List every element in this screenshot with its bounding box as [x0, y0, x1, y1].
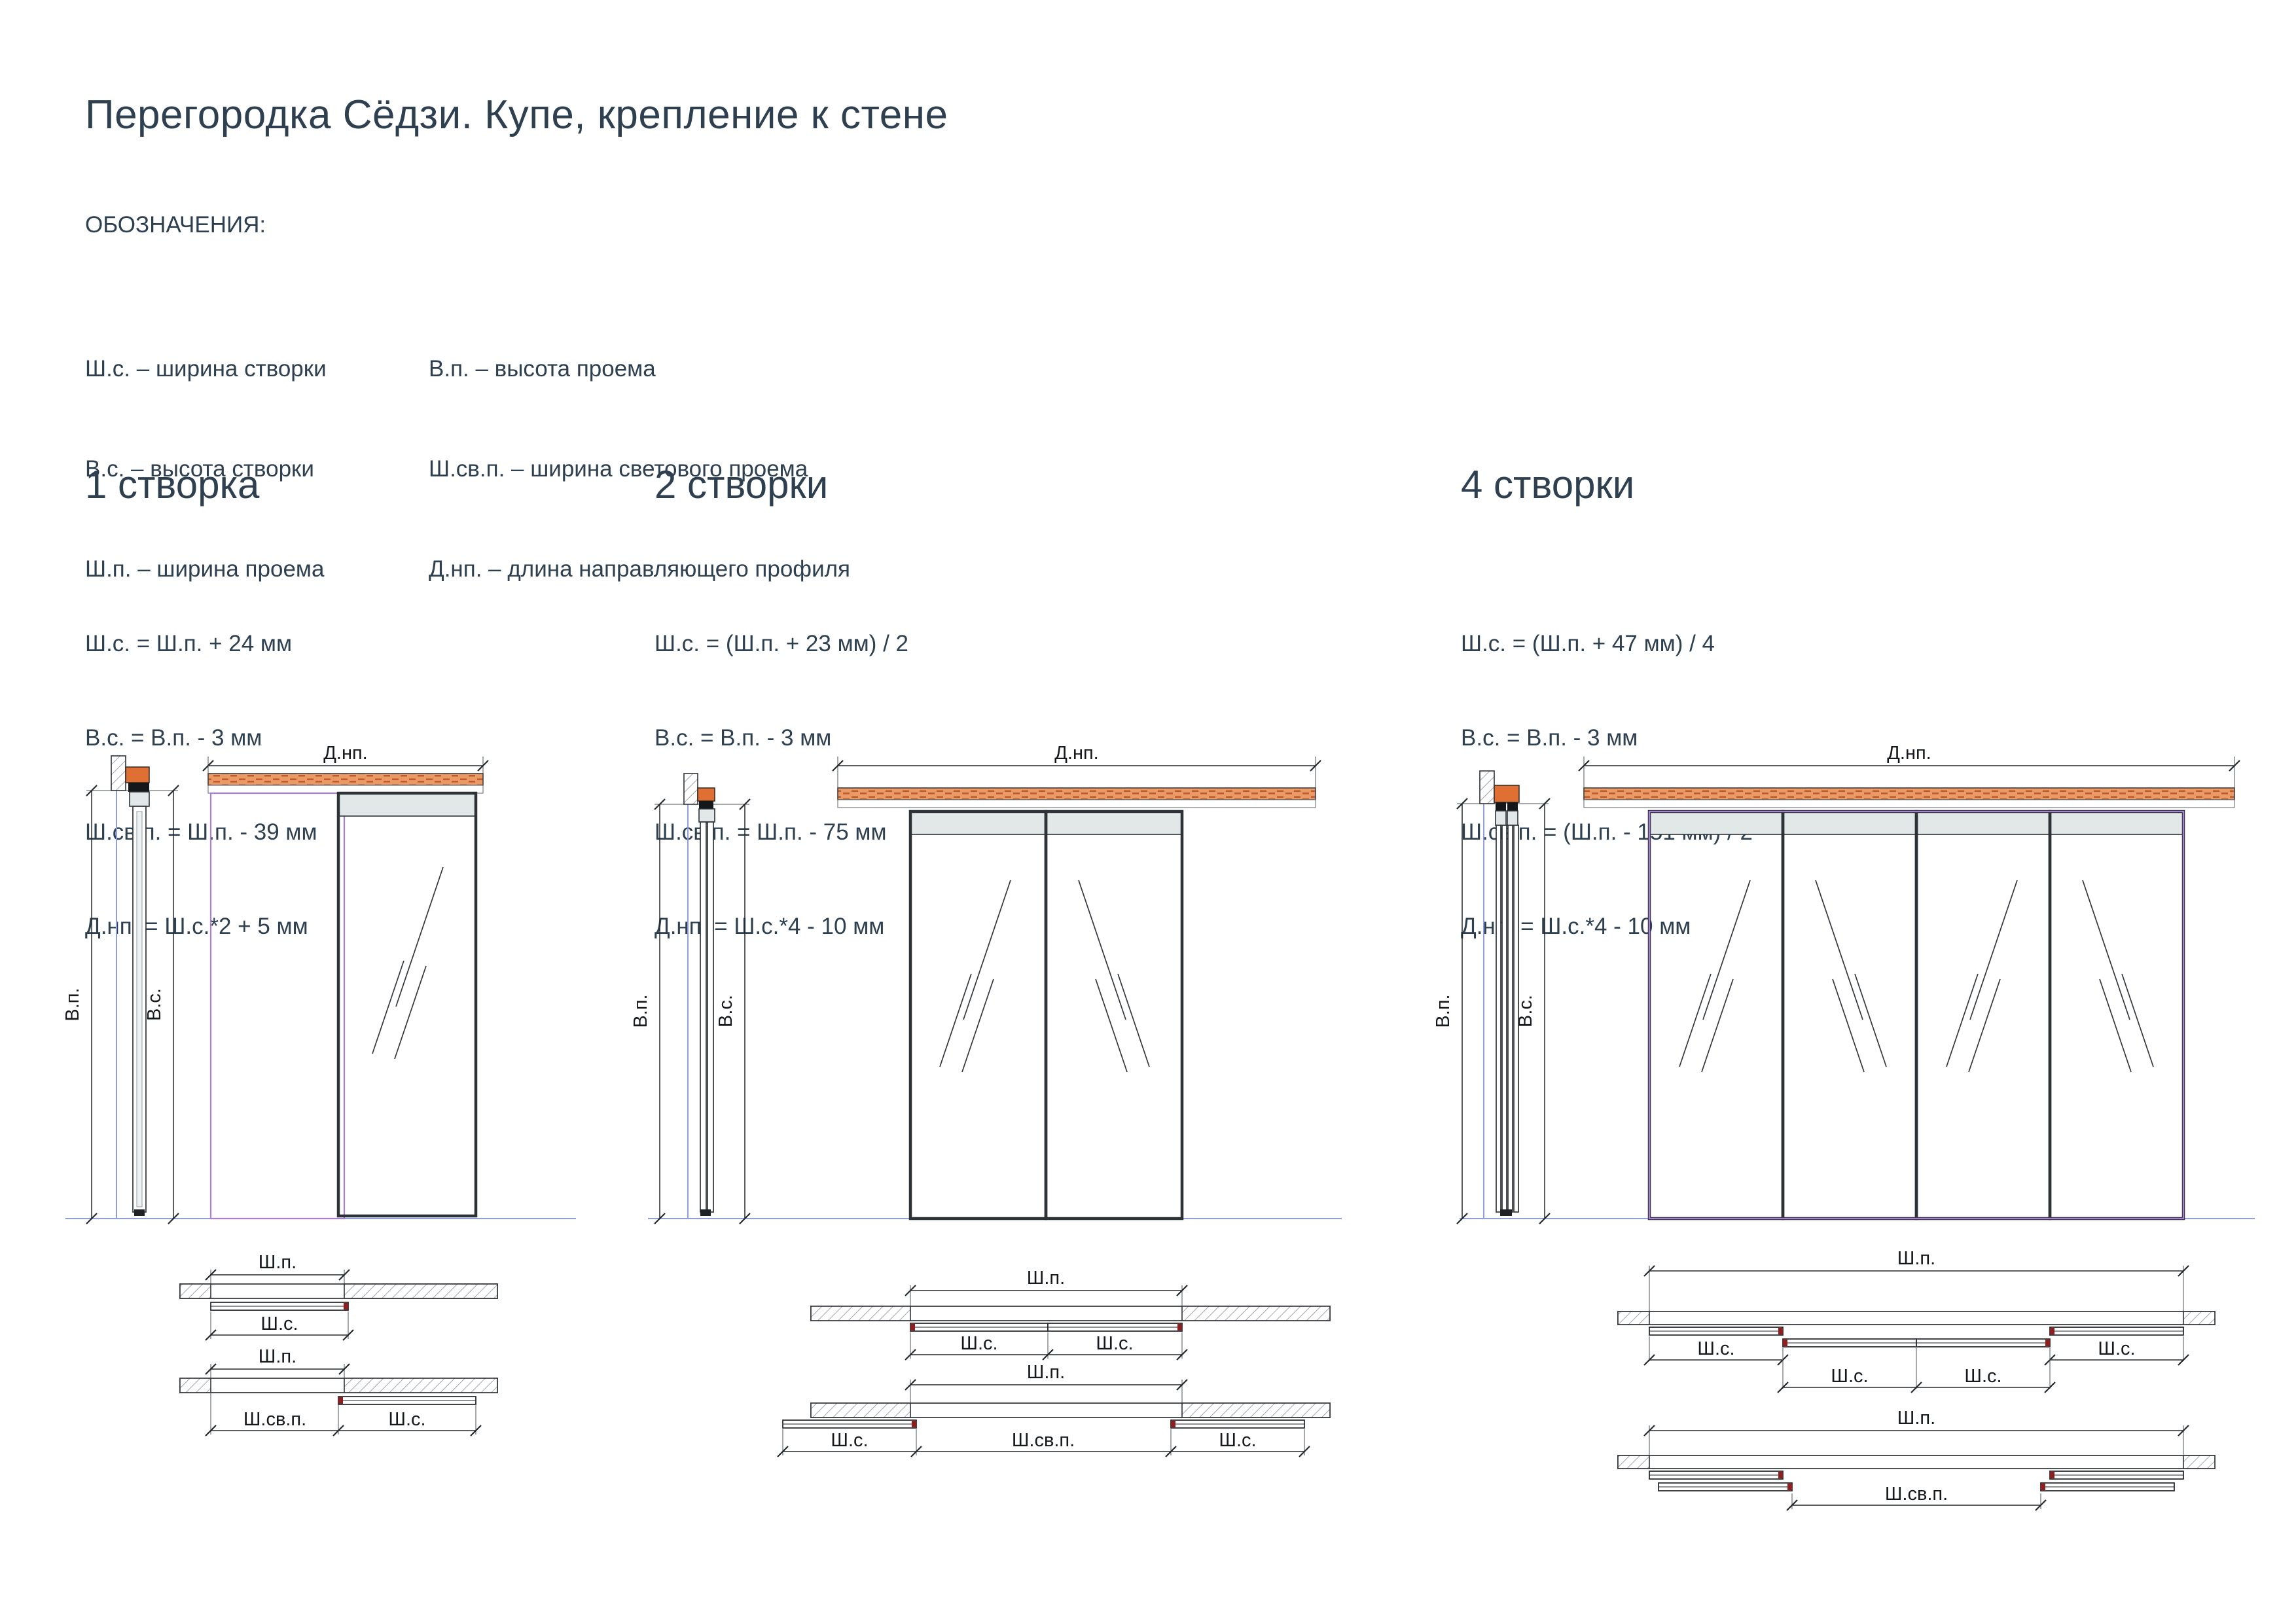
section-1-heading: 1 створка: [85, 462, 259, 507]
guide-profile: [838, 788, 1316, 800]
leaf-section: [700, 822, 706, 1212]
label-shs: Ш.с.: [1831, 1366, 1868, 1387]
dim-vs: В.с.: [715, 799, 750, 1224]
section-4-heading: 4 створки: [1461, 462, 1634, 507]
label-shs: Ш.с.: [2098, 1338, 2135, 1359]
door-leaf: [338, 793, 476, 1216]
page: { "page": { "title": "Перегородка Сёдзи.…: [0, 0, 2296, 1623]
handle-mark: [1787, 1484, 1792, 1490]
glass-mark: [2083, 880, 2153, 1072]
guide-profile: [1584, 788, 2234, 800]
label-shp: Ш.п.: [259, 1252, 296, 1273]
section-1-drawing: В.п. В.с. Д.нп. Ш.п.: [62, 743, 576, 1436]
top-view-closed: Ш.п. Ш.с. Ш.с.: [811, 1268, 1330, 1360]
top-view-closed: Ш.п. Ш.с.: [180, 1252, 497, 1340]
track-profile: [128, 783, 149, 792]
page-title: Перегородка Сёдзи. Купе, крепление к сте…: [85, 92, 948, 138]
roller-cap: [699, 809, 715, 822]
top-view-open: Ш.п. Ш.св.п.: [1618, 1408, 2215, 1510]
label-shp: Ш.п.: [1897, 1248, 1935, 1269]
label-shs: Ш.с.: [260, 1313, 298, 1334]
label-shsvp: Ш.св.п.: [243, 1409, 306, 1430]
legend-item: Ш.с. – ширина створки: [85, 352, 327, 385]
door-leaf: [1916, 811, 2050, 1219]
handle-mark: [1783, 1340, 1787, 1346]
label-shs: Ш.с.: [960, 1333, 997, 1354]
label-dnp: Д.нп.: [1887, 743, 1931, 764]
label-shp: Ш.п.: [1027, 1268, 1065, 1289]
door-leaf: [2050, 811, 2183, 1219]
dim-vp: В.п.: [1433, 798, 1467, 1224]
label-vp: В.п.: [62, 988, 83, 1021]
handle-mark: [1778, 1472, 1783, 1478]
front-view: Д.нп.: [203, 743, 488, 1219]
handle-mark: [1171, 1421, 1175, 1427]
glass-mark: [940, 880, 1011, 1072]
glass-mark: [1816, 880, 1886, 1072]
door-leaf: [1046, 811, 1182, 1219]
door-leaf: [1649, 811, 1783, 1219]
handle-mark: [338, 1397, 343, 1404]
track-profile: [1507, 802, 1518, 811]
label-dnp: Д.нп.: [323, 743, 367, 764]
front-view: Д.нп.: [1579, 743, 2240, 1219]
technical-drawings: В.п. В.с. Д.нп. Ш.п.: [0, 707, 2296, 1623]
dim-dnp: Д.нп.: [833, 743, 1321, 789]
label-shsvp: Ш.св.п.: [1012, 1430, 1075, 1451]
roller-cap: [130, 792, 149, 806]
top-view-open: Ш.п. Ш.св.п. Ш.с.: [180, 1346, 497, 1436]
leaf-section: [708, 822, 713, 1212]
door-leaf: [910, 811, 1046, 1219]
leaf-section: [1514, 825, 1518, 1212]
side-view: В.п. В.с.: [62, 756, 179, 1224]
label-shs: Ш.с.: [831, 1430, 868, 1451]
legend-item: В.п. – высота проема: [429, 352, 850, 385]
dim-dnp: Д.нп.: [203, 743, 488, 775]
label-vp: В.п.: [630, 994, 651, 1027]
leaf-section: [1502, 825, 1507, 1212]
track-profile: [699, 801, 713, 809]
wall-section: [111, 756, 126, 791]
label-shp: Ш.п.: [1027, 1362, 1065, 1383]
label-shs: Ш.с.: [1964, 1366, 2001, 1387]
label-shs: Ш.с.: [1219, 1430, 1256, 1451]
handle-mark: [910, 1324, 915, 1330]
label-shp: Ш.п.: [1897, 1408, 1935, 1429]
formula-line: Ш.с. = (Ш.п. + 47 мм) / 4: [1461, 628, 1753, 660]
track-profile: [1496, 802, 1506, 811]
door-leaf: [1783, 811, 1916, 1219]
wall-bracket: [698, 788, 715, 801]
glass-mark: [1946, 880, 2017, 1072]
section-2-drawing: В.п. В.с. Д.нп. Ш.п.: [630, 743, 1342, 1457]
front-view: Д.нп.: [833, 743, 1321, 1219]
dim-vp: В.п.: [62, 785, 97, 1224]
dim-vs: В.с.: [144, 785, 179, 1224]
formula-line: Ш.с. = (Ш.п. + 23 мм) / 2: [655, 628, 908, 660]
handle-mark: [2050, 1472, 2054, 1478]
handle-mark: [1177, 1324, 1182, 1330]
section-4-drawing: В.п. В.с. Д.нп.: [1433, 743, 2255, 1510]
label-vp: В.п.: [1433, 994, 1454, 1027]
roller-cap: [1496, 811, 1506, 825]
side-view: В.п. В.с.: [630, 774, 750, 1224]
label-vs: В.с.: [715, 995, 736, 1027]
leaf-section: [1496, 825, 1501, 1212]
formula-line: Ш.с. = Ш.п. + 24 мм: [85, 628, 317, 660]
wall-section: [684, 774, 698, 804]
section-2-heading: 2 створки: [655, 462, 828, 507]
dim-vp: В.п.: [630, 799, 665, 1224]
leaf-section: [1508, 825, 1513, 1212]
label-shs: Ш.с.: [1697, 1338, 1734, 1359]
wall-bracket: [126, 767, 149, 783]
top-view-open: Ш.п. Ш.с. Ш.св.п. Ш.с.: [778, 1362, 1330, 1457]
label-shs: Ш.с.: [1096, 1333, 1133, 1354]
glass-mark: [1079, 880, 1149, 1072]
guide-profile: [208, 774, 483, 785]
wall-bracket: [1494, 785, 1519, 802]
label-shsvp: Ш.св.п.: [1885, 1484, 1948, 1505]
wall-section: [1480, 771, 1494, 804]
top-view-closed: Ш.п. Ш.с. Ш.с. Ш.с. Ш.с.: [1618, 1248, 2215, 1393]
label-dnp: Д.нп.: [1054, 743, 1098, 764]
handle-mark: [2045, 1340, 2050, 1346]
dim-dnp: Д.нп.: [1579, 743, 2240, 789]
legend-heading: ОБОЗНАЧЕНИЯ:: [85, 212, 266, 238]
handle-mark: [912, 1421, 916, 1427]
opening-outline: [211, 793, 344, 1219]
side-view: В.п. В.с.: [1433, 771, 1550, 1224]
handle-mark: [1778, 1328, 1783, 1334]
glass-mark: [372, 867, 443, 1059]
roller-cap: [1507, 811, 1518, 825]
label-vs: В.с.: [144, 988, 165, 1021]
handle-mark: [2050, 1328, 2054, 1334]
handle-mark: [344, 1303, 348, 1310]
handle-mark: [2041, 1484, 2045, 1490]
label-shp: Ш.п.: [259, 1346, 296, 1367]
dim-vs: В.с.: [1515, 798, 1550, 1224]
label-shs: Ш.с.: [388, 1409, 425, 1430]
glass-mark: [1679, 880, 1750, 1072]
